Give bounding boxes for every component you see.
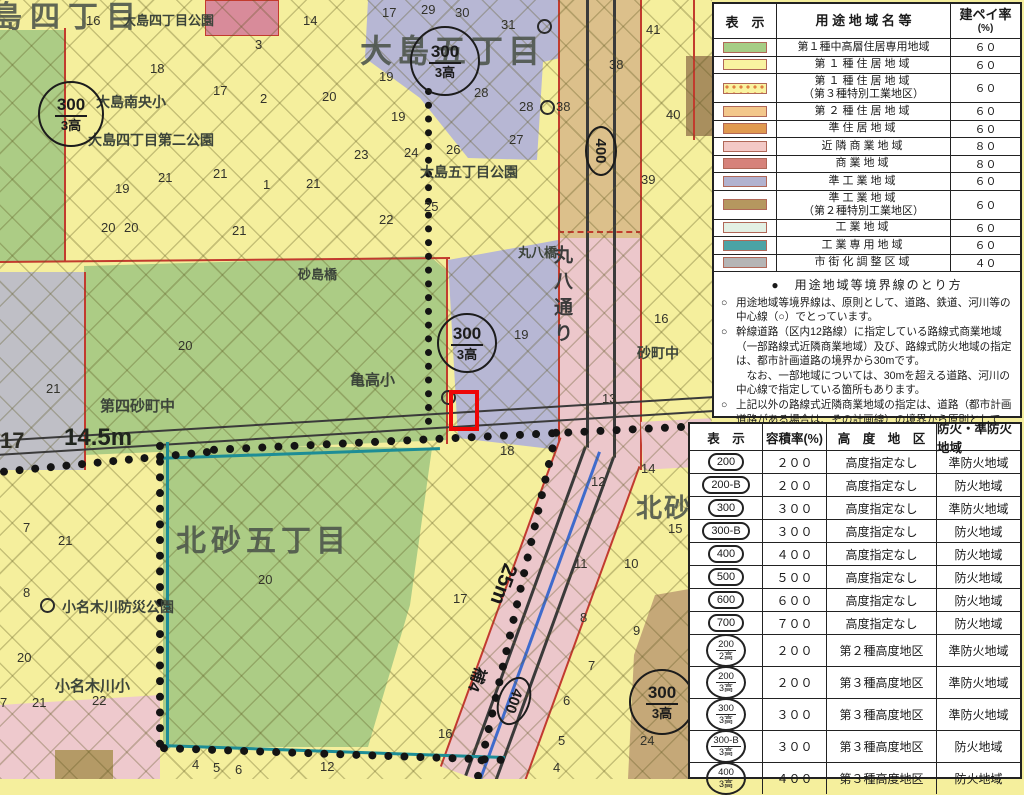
plot-number: 20	[17, 650, 31, 665]
far-symbol-top: 200	[716, 640, 736, 652]
legend-ratio-row: 300 3高 ３００ 第３種高度地区 準防火地域	[690, 698, 1020, 730]
plot-number: 38	[609, 57, 623, 72]
zoning-symbol-300-3ko: 300 3高	[410, 26, 480, 96]
height-district: 高度指定なし	[826, 543, 936, 565]
zone-swatch	[723, 106, 767, 117]
far-symbol: 200	[708, 453, 744, 471]
note-bullet: ○	[721, 296, 736, 324]
symbol-3ko: 3高	[457, 346, 477, 361]
height-district: 第３種高度地区	[826, 731, 936, 762]
plot-number: 16	[654, 311, 668, 326]
height-district: 高度指定なし	[826, 520, 936, 542]
plot-number: 17	[453, 591, 467, 606]
plot-number: 19	[391, 109, 405, 124]
region-park-ojima4	[205, 0, 279, 36]
plot-number: 21	[32, 695, 46, 710]
region-green-kitasuna5	[160, 445, 435, 747]
region-brown-topright	[686, 56, 712, 136]
plot-number: 40	[666, 107, 680, 122]
plot-number: 31	[501, 17, 515, 32]
plot-number: 17	[0, 428, 24, 454]
symbol-3ko: 3高	[435, 64, 455, 79]
zone-name: 第２種住居地域	[815, 105, 913, 118]
fire-district: 防火地域	[936, 566, 1020, 588]
label-maruhachi-street: 丸八通り	[548, 245, 575, 349]
far-symbol: 600	[708, 591, 744, 609]
zone-name: 第１種中高層住居専用地域	[798, 41, 930, 54]
zone-ratio: ６０	[950, 121, 1020, 138]
plot-number: 14	[303, 13, 317, 28]
far-symbol-top: 300	[716, 704, 736, 716]
plot-number: 4	[553, 760, 560, 775]
far-symbol-fraction: 300 3高	[706, 698, 746, 731]
plot-number: 17	[213, 83, 227, 98]
zone-name: 第１種住居地域	[815, 75, 913, 88]
plot-number: 28	[474, 85, 488, 100]
plot-number: 7	[0, 695, 7, 710]
plot-number: 12	[591, 474, 605, 489]
fire-district: 準防火地域	[936, 497, 1020, 519]
legend-ratio-row: 200 ２００ 高度指定なし 準防火地域	[690, 450, 1020, 473]
note-text: 用途地域等境界線は、原則として、道路、鉄道、河川等の中心線（○）でとっています。	[736, 296, 1013, 324]
far-symbol-fraction: 300-B 3高	[706, 730, 746, 763]
plot-number: 17	[382, 5, 396, 20]
symbol-300: 300	[55, 96, 87, 117]
header-kenpei-ritsu: 建ペイ率 (%)	[950, 4, 1020, 38]
plot-number: 7	[588, 658, 595, 673]
label-ojima5-park: 大島五丁目公園	[420, 162, 518, 182]
legend-use-header-row: 表 示 用 途 地 域 名 等 建ペイ率 (%)	[714, 4, 1020, 38]
zone-ratio: ８０	[950, 138, 1020, 155]
legend-ratio-row: 300-B ３００ 高度指定なし 防火地域	[690, 519, 1020, 542]
plot-number: 29	[421, 2, 435, 17]
far-symbol-top: 300-B	[711, 736, 740, 748]
zone-name: 準工業地域	[829, 175, 899, 188]
plot-number: 27	[509, 132, 523, 147]
district-name-kitasuna: 北砂	[636, 488, 692, 525]
symbol-300: 300	[429, 43, 461, 64]
district-name-kitasuna5: 北砂五丁目	[176, 516, 351, 560]
zone-name: 工業専用地域	[822, 239, 906, 252]
plot-number: 11	[574, 556, 588, 571]
plot-number: 26	[446, 142, 460, 157]
zone-ratio: ８０	[950, 156, 1020, 173]
legend-ratio-row: 700 ７００ 高度指定なし 防火地域	[690, 611, 1020, 634]
legend-ratio-table: 表 示 容積率(%) 高 度 地 区 防火・準防火地域 200 ２００ 高度指定…	[688, 422, 1022, 779]
plot-number: 4	[192, 757, 199, 772]
far-value: ２００	[762, 635, 826, 666]
zone-ratio: ６０	[950, 39, 1020, 56]
zone-swatch	[723, 83, 767, 94]
far-value: ４００	[762, 543, 826, 565]
far-symbol: 400	[708, 545, 744, 563]
zone-swatch	[723, 176, 767, 187]
label-daiyon-sunamachi-jhs: 第四砂町中	[100, 395, 175, 416]
legend-note-item: なお、一部地域については、30mを超える道路、河川の中心線で指定している箇所もあ…	[721, 369, 1013, 397]
zoning-symbol-300-3ko: 300 3高	[437, 313, 497, 373]
far-symbol-bottom: 2高	[719, 651, 733, 661]
far-symbol: 500	[708, 568, 744, 586]
plot-number: 19	[514, 327, 528, 342]
district-dot-boundary	[156, 442, 164, 748]
plot-number: 3	[255, 37, 262, 52]
plot-number: 41	[646, 22, 660, 37]
legend-note-item: ○ 用途地域等境界線は、原則として、道路、鉄道、河川等の中心線（○）でとっていま…	[721, 296, 1013, 324]
height-district: 高度指定なし	[826, 497, 936, 519]
zone-ratio: ６０	[950, 57, 1020, 74]
fire-district: 防火地域	[936, 731, 1020, 762]
plot-number: 21	[58, 533, 72, 548]
zone-swatch	[723, 222, 767, 233]
plot-number: 6	[235, 762, 242, 777]
height-district: 第３種高度地区	[826, 667, 936, 698]
plot-number: 9	[633, 623, 640, 638]
far-symbol-top: 200	[716, 672, 736, 684]
plot-number: 2	[260, 91, 267, 106]
legend-use-district-table: 表 示 用 途 地 域 名 等 建ペイ率 (%) 第１種中高層住居専用地域 ６０…	[712, 2, 1022, 418]
far-value: ７００	[762, 612, 826, 634]
region-brown-bottomleft-patch	[55, 750, 113, 779]
zone-name: 第１種住居地域	[815, 58, 913, 71]
plot-number: 16	[86, 13, 100, 28]
label-onagigawa-park: 小名木川防災公園	[62, 597, 174, 617]
far-value: ２００	[762, 474, 826, 496]
plot-number: 18	[150, 61, 164, 76]
zone-swatch	[723, 158, 767, 169]
fire-district: 防火地域	[936, 543, 1020, 565]
plot-number: 20	[124, 220, 138, 235]
zone-ratio: ６０	[950, 220, 1020, 237]
plot-number: 21	[158, 170, 172, 185]
height-district: 高度指定なし	[826, 451, 936, 473]
zone-name: 市街化調整区域	[815, 256, 913, 269]
plot-number: 21	[306, 176, 320, 191]
legend-ratio-row: 200 2高 ２００ 第２種高度地区 準防火地域	[690, 634, 1020, 666]
zone-name: 準工業地域	[829, 192, 899, 205]
zone-swatch	[723, 257, 767, 268]
plot-number: 13	[602, 391, 616, 406]
far-symbol-bottom: 3高	[719, 683, 733, 693]
legend-use-row: 準工業地域 ６０	[714, 172, 1020, 190]
legend-use-row: 準住居地域 ６０	[714, 120, 1020, 138]
fire-district: 防火地域	[936, 474, 1020, 496]
zone-swatch	[723, 141, 767, 152]
plot-number: 14	[641, 461, 655, 476]
zone-ratio: ６０	[950, 74, 1020, 102]
plot-number: 24	[640, 733, 654, 748]
zone-ratio: ６０	[950, 103, 1020, 120]
fire-district: 防火地域	[936, 520, 1020, 542]
region-residential-green-left	[0, 30, 66, 262]
plot-number: 20	[322, 89, 336, 104]
label-kametaka-sho: 亀高小	[350, 369, 395, 390]
legend-ratio-row: 600 ６００ 高度指定なし 防火地域	[690, 588, 1020, 611]
plot-number: 30	[455, 5, 469, 20]
far-value: ６００	[762, 589, 826, 611]
note-text: 幹線道路（区内12路線）に指定している路線式商業地域（一部路線式近隣商業地域）及…	[736, 325, 1013, 368]
plot-number: 28	[519, 99, 533, 114]
far-value: ３００	[762, 520, 826, 542]
far-value: ５００	[762, 566, 826, 588]
legend-use-row: 近隣商業地域 ８０	[714, 137, 1020, 155]
plot-number: 21	[213, 166, 227, 181]
zone-name-sub: （第２種特別工業地区）	[803, 205, 924, 218]
zone-swatch	[723, 42, 767, 53]
symbol-3ko: 3高	[652, 705, 672, 720]
zone-name: 近隣商業地域	[822, 140, 906, 153]
plot-number: 5	[558, 733, 565, 748]
legend-ratio-row: 500 ５００ 高度指定なし 防火地域	[690, 565, 1020, 588]
plot-number: 20	[178, 338, 192, 353]
symbol-300: 300	[646, 684, 678, 705]
label-ojima4-park: 大島四丁目公園	[123, 10, 214, 29]
label-ojima-nanou-sho: 大島南央小	[96, 92, 166, 112]
plot-number: 5	[213, 760, 220, 775]
fire-district: 防火地域	[936, 589, 1020, 611]
header-kenpei-label: 建ペイ率	[959, 8, 1011, 22]
height-district: 第２種高度地区	[826, 635, 936, 666]
bridge-dashed-line	[558, 231, 642, 233]
highlight-marker[interactable]	[449, 390, 479, 431]
zone-name: 工業地域	[836, 221, 892, 234]
zone-swatch	[723, 199, 767, 210]
far-symbol-fraction: 200 2高	[706, 634, 746, 667]
far-symbol: 300-B	[702, 522, 749, 540]
far-value: ３００	[762, 497, 826, 519]
fire-district: 準防火地域	[936, 635, 1020, 666]
far-value: ３００	[762, 731, 826, 762]
plot-number: 20	[101, 220, 115, 235]
legend-use-row: 第１種中高層住居専用地域 ６０	[714, 38, 1020, 56]
fire-district: 防火地域	[936, 612, 1020, 634]
plot-number: 12	[320, 759, 334, 774]
far-value: ３００	[762, 699, 826, 730]
zone-ratio: ６０	[950, 191, 1020, 219]
boundary-point-circle	[537, 19, 552, 34]
fire-district: 準防火地域	[936, 699, 1020, 730]
zone-swatch	[723, 240, 767, 251]
plot-number: 39	[641, 172, 655, 187]
header-kodo-chiku: 高 度 地 区	[826, 424, 936, 450]
symbol-300: 300	[451, 325, 483, 346]
legend-use-row: 第１種住居地域 （第３種特別工業地区） ６０	[714, 73, 1020, 102]
plot-number: 21	[232, 223, 246, 238]
symbol-3ko: 3高	[61, 117, 81, 132]
road-maruhachi-upper-tan	[558, 0, 642, 240]
boundary-teal-line	[166, 442, 169, 748]
plot-number: 38	[556, 99, 570, 114]
zone-ratio: ４０	[950, 255, 1020, 272]
legend-ratio-header-row: 表 示 容積率(%) 高 度 地 区 防火・準防火地域	[690, 424, 1020, 450]
plot-number: 20	[258, 572, 272, 587]
plot-number: 22	[92, 693, 106, 708]
fire-district: 準防火地域	[936, 667, 1020, 698]
legend-ratio-row: 300 ３００ 高度指定なし 準防火地域	[690, 496, 1020, 519]
plot-number: 24	[404, 145, 418, 160]
note-bullet: ○	[721, 325, 736, 368]
legend-ratio-row: 200-B ２００ 高度指定なし 防火地域	[690, 473, 1020, 496]
header-hyoji: 表 示	[690, 424, 762, 450]
height-district: 第３種高度地区	[826, 699, 936, 730]
plot-number: 18	[500, 443, 514, 458]
plot-number: 22	[379, 212, 393, 227]
plot-number: 23	[354, 147, 368, 162]
legend-use-row: 第１種住居地域 ６０	[714, 56, 1020, 74]
legend-note-item: ○ 幹線道路（区内12路線）に指定している路線式商業地域（一部路線式近隣商業地域…	[721, 325, 1013, 368]
legend-notes-title: ● 用途地域等境界線のとり方	[721, 277, 1013, 293]
far-symbol-bottom: 3高	[719, 747, 733, 757]
legend-ratio-row: 300-B 3高 ３００ 第３種高度地区 防火地域	[690, 730, 1020, 762]
plot-number: 15	[668, 521, 682, 536]
plot-number: 25	[424, 199, 438, 214]
far-symbol-top: 400	[716, 768, 736, 780]
plot-number: 16	[438, 726, 452, 741]
legend-ratio-row: 400 3高 ４００ 第３種高度地区 防火地域	[690, 762, 1020, 794]
far-symbol-fraction: 200 3高	[706, 666, 746, 699]
label-sunamachi-jhs: 砂町中	[637, 343, 679, 363]
legend-use-row: 第２種住居地域 ６０	[714, 102, 1020, 120]
note-bullet	[721, 369, 736, 397]
header-kenpei-unit: (%)	[978, 23, 994, 34]
zoning-symbol-300-3ko: 300 3高	[38, 81, 104, 147]
height-district: 高度指定なし	[826, 589, 936, 611]
legend-use-row: 商業地域 ８０	[714, 155, 1020, 173]
plot-number: 8	[580, 610, 587, 625]
zone-swatch	[723, 123, 767, 134]
legend-use-row: 準工業地域 （第２種特別工業地区） ６０	[714, 190, 1020, 219]
far-value: ２００	[762, 667, 826, 698]
district-dot-boundary	[425, 88, 432, 425]
label-ojima4-park2: 大島四丁目第二公園	[88, 130, 214, 150]
far-symbol: 700	[708, 614, 744, 632]
plot-number: 19	[379, 69, 393, 84]
header-yoseki-ritsu: 容積率(%)	[762, 424, 826, 450]
zone-ratio: ６０	[950, 173, 1020, 190]
zone-ratio: ６０	[950, 237, 1020, 254]
legend-use-row: 市街化調整区域 ４０	[714, 254, 1020, 272]
header-boka-chiiki: 防火・準防火地域	[936, 424, 1020, 450]
boundary-point-circle	[40, 598, 55, 613]
label-road-145m: 14.5m	[64, 424, 132, 452]
zone-name: 準住居地域	[829, 122, 899, 135]
road-symbol-400: 400	[585, 126, 617, 176]
height-district: 高度指定なし	[826, 612, 936, 634]
plot-number: 21	[46, 381, 60, 396]
height-district: 高度指定なし	[826, 566, 936, 588]
far-value: ２００	[762, 451, 826, 473]
note-text: なお、一部地域については、30mを超える道路、河川の中心線で指定している箇所もあ…	[736, 369, 1013, 397]
header-yoto-chiiki: 用 途 地 域 名 等	[776, 4, 950, 38]
zoning-symbol-300-3ko: 300 3高	[629, 669, 695, 735]
far-symbol-bottom: 3高	[719, 779, 733, 789]
label-sunajima-bridge: 砂島橋	[298, 264, 337, 283]
plot-number: 19	[115, 181, 129, 196]
plot-number: 6	[563, 693, 570, 708]
far-symbol: 300	[708, 499, 744, 517]
legend-ratio-row: 400 ４００ 高度指定なし 防火地域	[690, 542, 1020, 565]
zone-name-sub: （第３種特別工業地区）	[803, 88, 924, 101]
zone-swatch	[723, 59, 767, 70]
far-symbol: 200-B	[702, 476, 749, 494]
legend-use-row: 工業地域 ６０	[714, 219, 1020, 237]
plot-number: 7	[23, 520, 30, 535]
zone-name: 商業地域	[836, 157, 892, 170]
plot-number: 1	[263, 177, 270, 192]
height-district: 高度指定なし	[826, 474, 936, 496]
zone-boundary	[693, 0, 695, 140]
legend-ratio-row: 200 3高 ２００ 第３種高度地区 準防火地域	[690, 666, 1020, 698]
fire-district: 準防火地域	[936, 451, 1020, 473]
boundary-point-circle	[540, 100, 555, 115]
plot-number: 8	[23, 585, 30, 600]
far-symbol-bottom: 3高	[719, 715, 733, 725]
legend-use-row: 工業専用地域 ６０	[714, 236, 1020, 254]
header-hyoji: 表 示	[714, 4, 776, 38]
plot-number: 10	[624, 556, 638, 571]
